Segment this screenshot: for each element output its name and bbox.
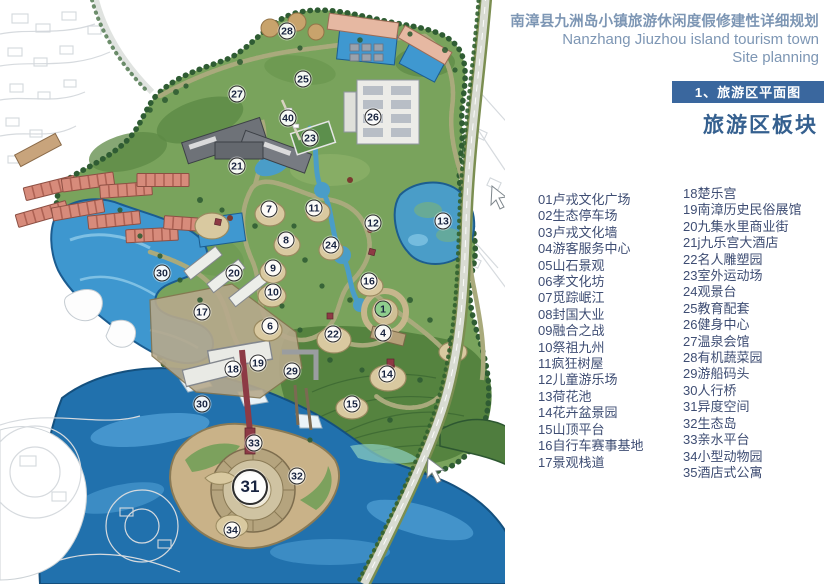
legend-item: 14花卉盆景园 — [538, 405, 698, 421]
legend-item: 06孝文化坊 — [538, 274, 698, 290]
legend-item: 17景观栈道 — [538, 455, 698, 471]
legend-item: 19南漳历史民俗展馆 — [683, 202, 824, 218]
legend-item: 15山顶平台 — [538, 422, 698, 438]
legend-item: 10祭祖九州 — [538, 340, 698, 356]
legend-item: 11疯狂树屋 — [538, 356, 698, 372]
legend-item: 01卢戎文化广场 — [538, 192, 698, 208]
legend-item: 25教育配套 — [683, 301, 824, 317]
legend-item: 29游船码头 — [683, 366, 824, 382]
legend-item: 32生态岛 — [683, 416, 824, 432]
legend-item: 22名人雕塑园 — [683, 252, 824, 268]
master-plan-map: .ctx{fill:none;stroke:#d6dade;stroke-wid… — [0, 0, 520, 584]
legend-item: 05山石景观 — [538, 258, 698, 274]
legend-item: 12儿童游乐场 — [538, 372, 698, 388]
legend-column-1: 01卢戎文化广场02生态停车场03卢戎文化墙04游客服务中心05山石景观06孝文… — [538, 192, 698, 471]
legend-item: 28有机蔬菜园 — [683, 350, 824, 366]
master-plan-drawing: .ctx{fill:none;stroke:#d6dade;stroke-wid… — [0, 0, 520, 584]
legend-item: 13荷花池 — [538, 389, 698, 405]
plan-title-english-line2: Site planning — [505, 49, 824, 67]
legend-item: 07觅踪岷江 — [538, 290, 698, 306]
plan-title-english-line1: Nanzhang Jiuzhou island tourism town — [505, 31, 824, 49]
legend-item: 08封国大业 — [538, 307, 698, 323]
legend-item: 30人行桥 — [683, 383, 824, 399]
legend-item: 27温泉会馆 — [683, 334, 824, 350]
section-label: 1、旅游区平面图 — [695, 82, 801, 101]
info-panel: 南漳县九洲岛小镇旅游休闲度假修建性详细规划 Nanzhang Jiuzhou i… — [505, 0, 824, 584]
legend-item: 04游客服务中心 — [538, 241, 698, 257]
legend-item: 24观景台 — [683, 284, 824, 300]
section-title: 旅游区板块 — [505, 109, 824, 139]
legend-item: 33亲水平台 — [683, 432, 824, 448]
legend-item: 35酒店式公寓 — [683, 465, 824, 481]
legend-item: 09融合之战 — [538, 323, 698, 339]
legend-item: 03卢戎文化墙 — [538, 225, 698, 241]
legend-item: 18楚乐宫 — [683, 186, 824, 202]
legend-item: 20九集水里商业街 — [683, 219, 824, 235]
legend-item: 31异度空间 — [683, 399, 824, 415]
legend-item: 23室外运动场 — [683, 268, 824, 284]
legend-column-2: 18楚乐宫19南漳历史民俗展馆20九集水里商业街21j九乐宫大酒店22名人雕塑园… — [683, 186, 824, 481]
legend-item: 16自行车赛事基地 — [538, 438, 698, 454]
site-planning-page: .ctx{fill:none;stroke:#d6dade;stroke-wid… — [0, 0, 824, 584]
section-label-bar: 1、旅游区平面图 — [672, 81, 824, 103]
legend-item: 21j九乐宫大酒店 — [683, 235, 824, 251]
legend-item: 26健身中心 — [683, 317, 824, 333]
plan-title-chinese: 南漳县九洲岛小镇旅游休闲度假修建性详细规划 — [505, 13, 824, 31]
legend-item: 34小型动物园 — [683, 449, 824, 465]
legend-item: 02生态停车场 — [538, 208, 698, 224]
